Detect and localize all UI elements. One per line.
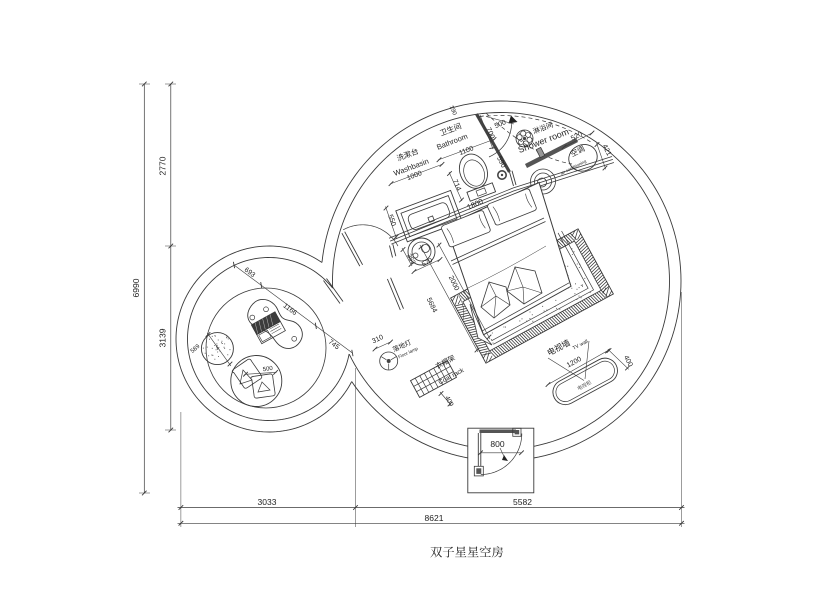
svg-text:2770: 2770 — [157, 156, 167, 175]
svg-text:800: 800 — [490, 439, 504, 449]
svg-text:3033: 3033 — [258, 497, 277, 507]
svg-text:8621: 8621 — [425, 513, 444, 523]
svg-text:6990: 6990 — [131, 278, 141, 297]
svg-text:5582: 5582 — [513, 497, 532, 507]
svg-text:3139: 3139 — [157, 328, 167, 347]
